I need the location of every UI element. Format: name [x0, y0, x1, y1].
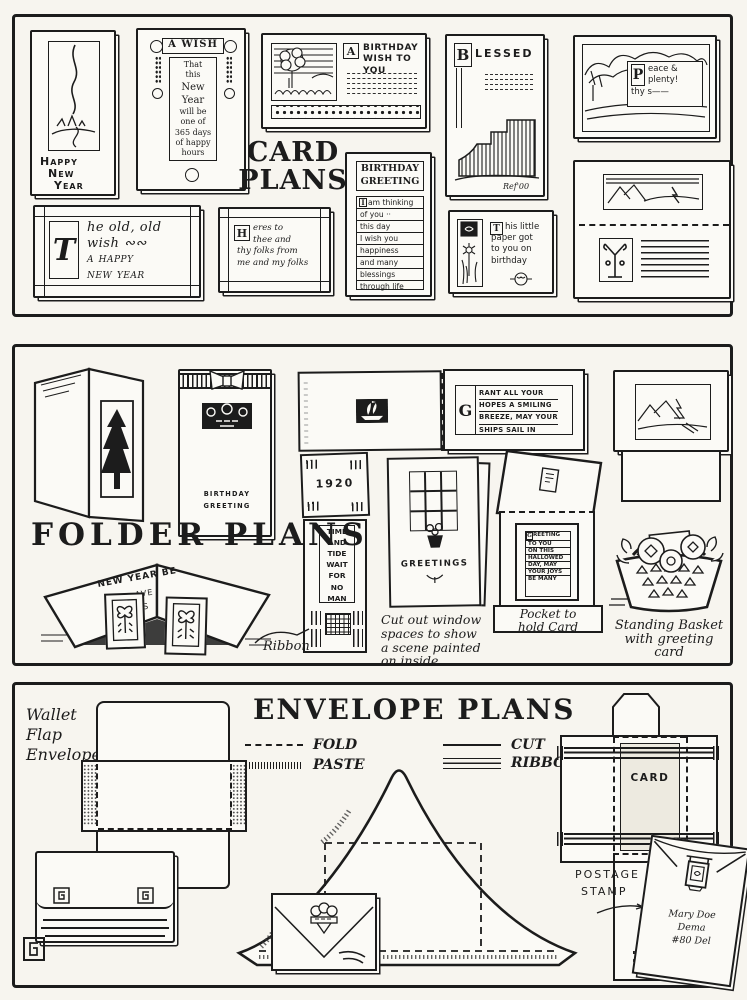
ribbon-hatch [353, 611, 363, 625]
border-line [35, 216, 201, 217]
wish-line: a happy [87, 251, 162, 267]
legend-fold: FOLD [245, 737, 357, 753]
border-line [220, 217, 331, 218]
paper-line: to you on [491, 244, 539, 255]
title-line: PLANS [231, 167, 355, 195]
owl-flourish-icon [508, 270, 534, 288]
verse-row: I wish you [357, 233, 423, 245]
caption-line: Standing Basket [601, 619, 737, 633]
wish-line: wish ∾∾ [87, 236, 162, 252]
landscape-folder-front [613, 370, 729, 452]
card-line: TO YOU [526, 541, 570, 548]
caption-line: spaces to show [381, 627, 481, 641]
verse-line: one of [170, 117, 216, 127]
verse-row: and many [357, 257, 423, 269]
little-paper-card: T his little paper got to you on birthda… [448, 210, 554, 294]
Y-tree-ornament [600, 239, 631, 280]
verse-row: Iam thinking [357, 197, 423, 209]
border-line [35, 285, 201, 286]
caption-line: a scene painted [381, 641, 481, 655]
fold-label: FOLD [313, 737, 357, 753]
peace-line: thy s—— [631, 87, 699, 98]
heres-line: me and my folks [237, 258, 308, 270]
window-folder-front: GREETINGS [387, 456, 482, 608]
bookmark-top-panel: 1920 [300, 452, 370, 518]
open-flap-shape [493, 447, 605, 517]
verse-row: this day [357, 221, 423, 233]
title-line: BIRTHDAY [357, 162, 423, 175]
paper-line: paper got [491, 233, 539, 244]
folder-plans-title: FOLDER PLANS [31, 517, 369, 553]
window-folder-caption: Cut out window spaces to show a scene pa… [381, 613, 481, 668]
border-line [228, 209, 229, 293]
ribbon-end-cap [557, 746, 565, 760]
page-edge-line [41, 927, 169, 929]
heres-line: eres to [253, 223, 308, 235]
cut-line-sample [443, 744, 501, 746]
bwish-title1: BIRTHDAY [363, 43, 425, 54]
label-line: POSTAGE [575, 867, 640, 884]
a-wish-verse: That this New Year will be one of 365 da… [169, 57, 217, 161]
postage-stamp-label: POSTAGE STAMP [575, 867, 640, 900]
heres-line: thee and [253, 235, 308, 247]
pointed-envelope-face [273, 895, 375, 969]
bow-knot-icon [206, 369, 248, 395]
paper-line: birthday [491, 256, 539, 267]
ribbon-hatch [353, 629, 363, 647]
a-wish-card: A WISH That this New Year will be one of… [136, 28, 246, 191]
card-plans-title: CARD PLANS [231, 139, 355, 196]
landscape-frame [635, 384, 711, 440]
bow-folder-title2: GREETING [180, 501, 272, 513]
fold-line [98, 828, 232, 830]
caption-line: Cut out window [381, 613, 481, 627]
border-line [190, 207, 191, 298]
mini-card-left [104, 592, 146, 649]
landscape-folder-lower-page [621, 452, 721, 502]
ribbon-band-top [564, 747, 714, 759]
flourish-icon [425, 571, 445, 585]
year-line: Year [40, 180, 110, 192]
envelope-address: Mary Doe Dema #80 Del [654, 908, 729, 949]
border-line [44, 207, 45, 298]
verse-row: through life [357, 281, 423, 292]
initial-T-swirl: T [49, 221, 79, 279]
greeting-scribble-lines [345, 69, 419, 98]
bgreeting-title: BIRTHDAY GREETING [356, 161, 424, 191]
open-folded-card [573, 160, 731, 299]
address-line: #80 Del [654, 934, 728, 949]
verse-line: New [170, 81, 216, 94]
verse-line: MAN [320, 593, 354, 604]
blessed-card: B LESSED Ref'00 [445, 34, 545, 197]
corner-circle-icon [152, 88, 163, 99]
dot-column-ornament [155, 56, 161, 84]
mountain-illustration [604, 175, 701, 208]
grant-line: HOPES A SMILING [479, 400, 558, 412]
ornament-square-icon [53, 887, 70, 904]
pocket-caption-band: Pocket to hold Card [493, 605, 603, 633]
ribbon-hatch [306, 460, 318, 469]
ribbon-end-cap [713, 746, 721, 760]
leaf-motif-icon [171, 603, 200, 648]
verse-line: FOR [320, 570, 354, 581]
wish-line: new year [87, 267, 162, 283]
verse-line: Year [170, 94, 216, 107]
ribbon-hatch [350, 460, 362, 469]
wish-line: he old, old [87, 220, 162, 236]
daisy-illustration [458, 220, 481, 285]
template-top-flap [96, 701, 230, 760]
addressed-envelope: Mary Doe Dema #80 Del [632, 835, 747, 988]
ornament-band [271, 105, 421, 119]
ribbon-hatch [308, 502, 320, 511]
leaf-motif-icon [111, 599, 138, 642]
pointed-envelope-finished [271, 893, 377, 971]
folder-right-page: G RANT ALL YOUR HOPES A SMILING BREEZE, … [443, 369, 585, 451]
initial-H: H [234, 225, 250, 241]
heres-to-thee-card: H eres to thee and thy folks from me and… [218, 207, 331, 293]
cliffs-illustration [453, 114, 541, 184]
corner-circle-icon [150, 40, 163, 53]
artist-monogram-icon [23, 937, 45, 961]
verse-line: WAIT [320, 559, 354, 570]
grant-line: BREEZE, MAY YOUR [479, 412, 558, 424]
bushy-tree-illustration [272, 44, 335, 99]
folder-plans-panel: BIRTHDAY GREETING G RANT ALL YOUR [12, 344, 733, 666]
trifold-pine-card [31, 365, 147, 531]
card-line: YOUR JOYS [526, 569, 570, 576]
verse-line: That [170, 60, 216, 70]
happy-new-year-card: Happy New Year [30, 30, 116, 196]
corner-circle-icon [185, 168, 199, 182]
initial-G: G [456, 386, 476, 434]
verse-line: NO [320, 582, 354, 593]
caption-line: with greeting [601, 633, 737, 647]
envelope-plans-panel: ENVELOPE PLANS FOLD PASTE CUT RIBBON Wal… [12, 682, 733, 988]
inserted-card: GREETING TO YOU ON THIS HALLOWED DAY, MA… [525, 531, 571, 597]
pocket-body: GREETING TO YOU ON THIS HALLOWED DAY, MA… [499, 511, 595, 607]
holder-top-flap [608, 691, 664, 737]
verse-line: this [170, 70, 216, 80]
page-curl-shading [304, 378, 309, 448]
smoke-village-illustration [49, 42, 98, 149]
verse-row: of you ·· [357, 209, 423, 221]
window-mullion [411, 510, 457, 513]
envelope-plans-title: ENVELOPE PLANS [253, 693, 576, 726]
card-line: REETING [533, 532, 560, 540]
peace-plenty-card: P eace & plenty! thy s—— [573, 35, 717, 139]
standing-basket-illustration [607, 513, 731, 617]
landscape-illustration [636, 385, 709, 438]
corner-circle-icon [224, 40, 237, 53]
tent-fold-card: NEW YEAR BE AVE ESS [39, 557, 273, 655]
card-line: HALLOWED [526, 555, 570, 562]
grant-line: SHIPS SAIL IN [479, 425, 558, 436]
ribbon-end-cap [557, 832, 565, 846]
card-label: CARD [621, 772, 679, 784]
peace-text-panel: P eace & plenty! thy s—— [627, 61, 703, 107]
ribbon-hatch [352, 502, 364, 511]
legend-cut: CUT [443, 737, 545, 753]
card-line: BE MANY [526, 576, 570, 582]
window-mullion [424, 472, 427, 530]
pocket-opening: GREETING TO YOU ON THIS HALLOWED DAY, MA… [515, 523, 579, 601]
old-old-wish-card: T he old, old wish ∾∾ a happy new year [33, 205, 201, 298]
birthday-wish-card: A BIRTHDAY WISH TO YOU [261, 33, 427, 129]
mountain-art-frame [603, 174, 703, 210]
initial-P: P [631, 64, 645, 86]
verse-row: blessings [357, 269, 423, 281]
cut-label: CUT [511, 737, 545, 753]
grant-line: RANT ALL YOUR [479, 388, 558, 400]
paper-line: his little [505, 222, 539, 233]
caption-line: Pocket to [495, 608, 601, 621]
corner-circle-icon [224, 88, 235, 99]
page-edge-line [43, 919, 167, 921]
mini-card-right [164, 596, 208, 655]
crown-ornament-icon [202, 399, 252, 433]
template-body [81, 760, 247, 832]
flower-pot-icon [420, 523, 450, 552]
bow-folder-title1: BIRTHDAY [180, 489, 272, 501]
wallet-envelope-finished [35, 851, 175, 943]
fold-line-sample [245, 744, 303, 746]
bow-folder: BIRTHDAY GREETING [178, 369, 272, 537]
postage-stamp-icon [680, 854, 715, 896]
paste-flap-left [83, 764, 98, 826]
folder-left-page [298, 370, 443, 452]
window-mullion [410, 490, 456, 493]
initial-B: B [454, 43, 472, 67]
page-edge-line [45, 935, 165, 937]
caption-line: hold Card [495, 621, 601, 634]
title-line: CARD [231, 139, 355, 167]
card-line: ON THIS [526, 548, 570, 555]
verse-line: hours [170, 148, 216, 158]
birthday-greeting-card: BIRTHDAY GREETING Iam thinking of you ··… [345, 152, 432, 297]
verse-row: happiness [357, 245, 423, 257]
a-wish-title: A WISH [162, 38, 224, 54]
caption-line: on inside [381, 654, 481, 668]
window-mullion [440, 472, 443, 530]
tree-art-frame [271, 43, 337, 101]
border-line [320, 209, 321, 293]
calendar-grid [325, 613, 351, 635]
verse-text: am thinking [368, 198, 413, 207]
bgreeting-verse-box: Iam thinking of you ·· this day I wish y… [356, 196, 424, 290]
bookmark-year: 1920 [303, 476, 367, 491]
card-plans-panel: Happy New Year A WISH That this New Year… [12, 14, 733, 317]
text-rules-block [641, 240, 709, 280]
initial-A: A [343, 43, 359, 59]
smoke-village-art-frame [48, 41, 100, 151]
card-line: DAY, MAY [526, 562, 570, 569]
verse-line: will be [170, 107, 216, 117]
initial-G: G [526, 532, 533, 540]
caption-line: card [601, 646, 737, 660]
ornament-square-icon [137, 887, 154, 904]
blessed-title: LESSED [475, 47, 534, 60]
title-line: GREETING [357, 175, 423, 188]
dot-column-ornament [226, 56, 232, 84]
pocket-folder: GREETING TO YOU ON THIS HALLOWED DAY, MA… [493, 447, 605, 633]
Y-ornament-panel [599, 238, 633, 282]
initial-I: I [359, 198, 367, 207]
fold-line [613, 736, 686, 738]
verse-line: 365 days [170, 128, 216, 138]
book-plate-page: Happy New Year A WISH That this New Year… [0, 0, 747, 1000]
label-line: STAMP [575, 884, 640, 901]
greetings-text: GREETINGS [390, 558, 478, 570]
artist-signature: Ref'00 [503, 182, 529, 191]
ship-emblem-icon [356, 399, 388, 423]
window-folder: GREETINGS [388, 457, 492, 609]
grant-text-box: G RANT ALL YOUR HOPES A SMILING BREEZE, … [455, 385, 573, 435]
heres-line: thy folks from [237, 246, 308, 258]
fold-line [579, 224, 729, 226]
verse-scribble-lines [483, 70, 535, 94]
fold-line [98, 760, 232, 762]
grant-hopes-open-folder: G RANT ALL YOUR HOPES A SMILING BREEZE, … [298, 369, 585, 453]
border-line [220, 281, 331, 282]
flower-panel [457, 219, 483, 287]
basket-caption: Standing Basket with greeting card [601, 619, 737, 660]
verse-line: of happy [170, 138, 216, 148]
